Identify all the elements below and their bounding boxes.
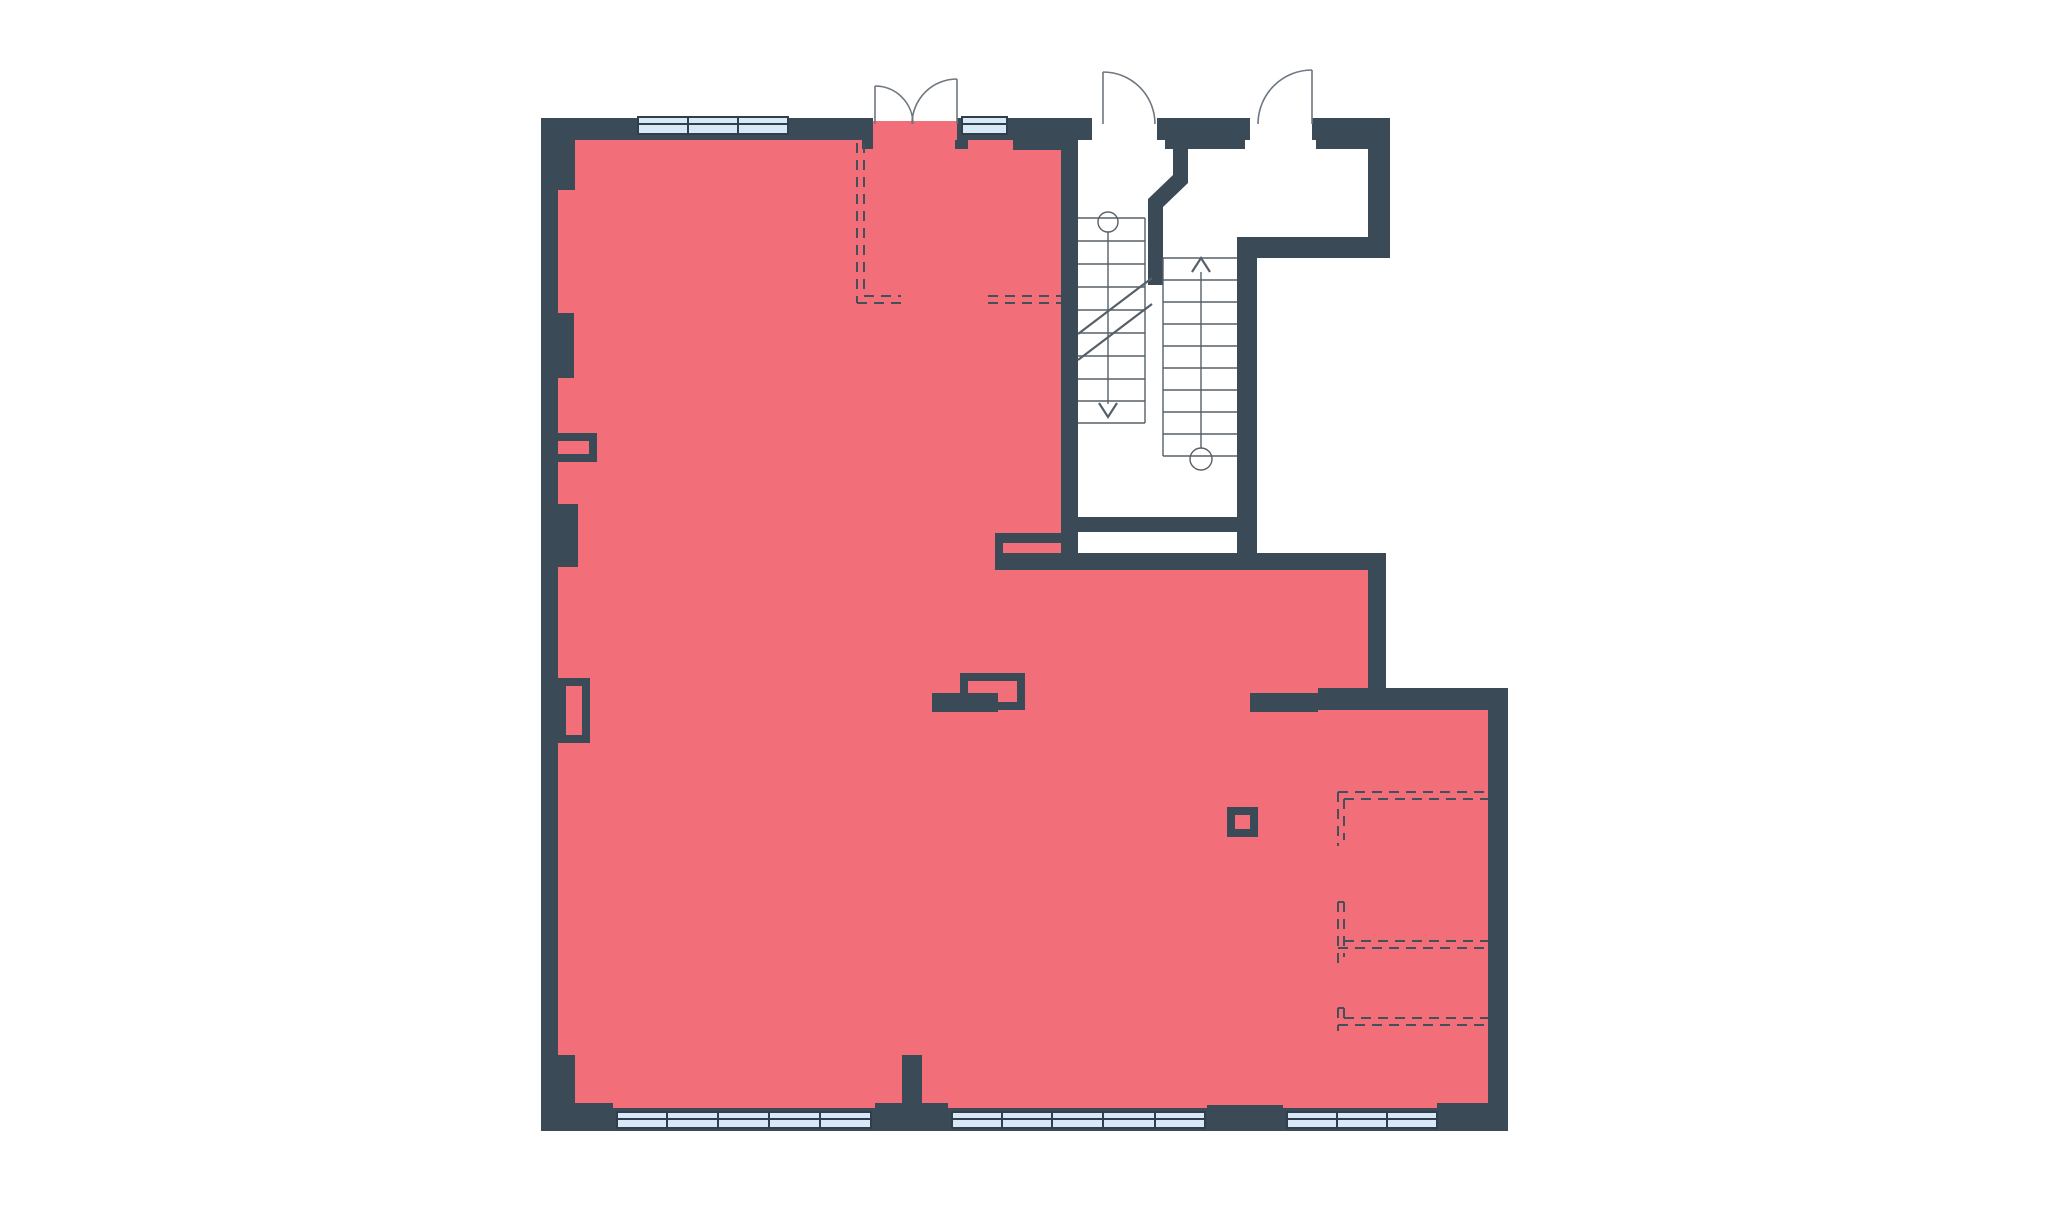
wall-under-right-room bbox=[1237, 237, 1390, 258]
left-wall-pier-bottom bbox=[558, 1055, 575, 1103]
left-wall-pier-1 bbox=[558, 313, 574, 378]
door-threshold-unit bbox=[873, 121, 957, 140]
floor-plan-canvas bbox=[0, 0, 2048, 1205]
unit-area-main-hall bbox=[549, 125, 1069, 1120]
unit-area-middle-band bbox=[1069, 560, 1379, 695]
window-glass bbox=[962, 117, 1007, 134]
exterior-wall-right bbox=[1488, 688, 1508, 1131]
window-glass bbox=[638, 117, 788, 134]
bottom-left-corner-block bbox=[541, 1103, 613, 1131]
bottom-right-corner-block bbox=[1437, 1103, 1508, 1131]
door-opening-cut bbox=[873, 112, 957, 121]
jamb-step-2 bbox=[955, 140, 968, 149]
bottom-pier-1-stub bbox=[902, 1055, 922, 1103]
left-niche-2-right bbox=[582, 678, 590, 743]
jamb-step-4 bbox=[1316, 140, 1388, 149]
stairwell-bottom-inner-wall bbox=[1078, 517, 1237, 532]
top-window-2 bbox=[962, 117, 1007, 134]
left-wall-pier-2 bbox=[557, 504, 578, 567]
extension-top-wall bbox=[1318, 688, 1507, 710]
bottom-pier-2 bbox=[1207, 1105, 1283, 1131]
door-opening-cut bbox=[1092, 112, 1157, 142]
unit-area-right-extension bbox=[1069, 695, 1498, 1120]
top-window-1 bbox=[638, 117, 788, 134]
stairwell-left-wall bbox=[1061, 140, 1078, 570]
island-outline-top bbox=[960, 673, 1025, 681]
duct-niche-left-cap bbox=[995, 533, 1003, 570]
bottom-window-3 bbox=[1287, 1112, 1437, 1128]
bottom-window-2 bbox=[952, 1112, 1205, 1128]
left-wall-pier-top bbox=[558, 138, 575, 190]
stair-block-bottom-wall bbox=[995, 553, 1386, 570]
stairwell-right-wall bbox=[1237, 237, 1257, 567]
middle-right-wall bbox=[1368, 553, 1386, 693]
bottom-window-1 bbox=[617, 1112, 871, 1128]
island-solid-bar bbox=[932, 693, 998, 712]
exterior-wall-left bbox=[541, 118, 558, 1131]
wall-stub-opening bbox=[1250, 693, 1318, 712]
duct-niche-top-bar bbox=[995, 533, 1061, 543]
floor-plan-page bbox=[0, 0, 2048, 1205]
left-niche-2-left bbox=[558, 678, 566, 743]
left-niche-1-bottom bbox=[557, 454, 597, 462]
door-opening-cut bbox=[1250, 112, 1312, 142]
stairwell-left-wall-cap bbox=[1013, 140, 1078, 150]
bottom-pier-1-base bbox=[875, 1103, 948, 1131]
